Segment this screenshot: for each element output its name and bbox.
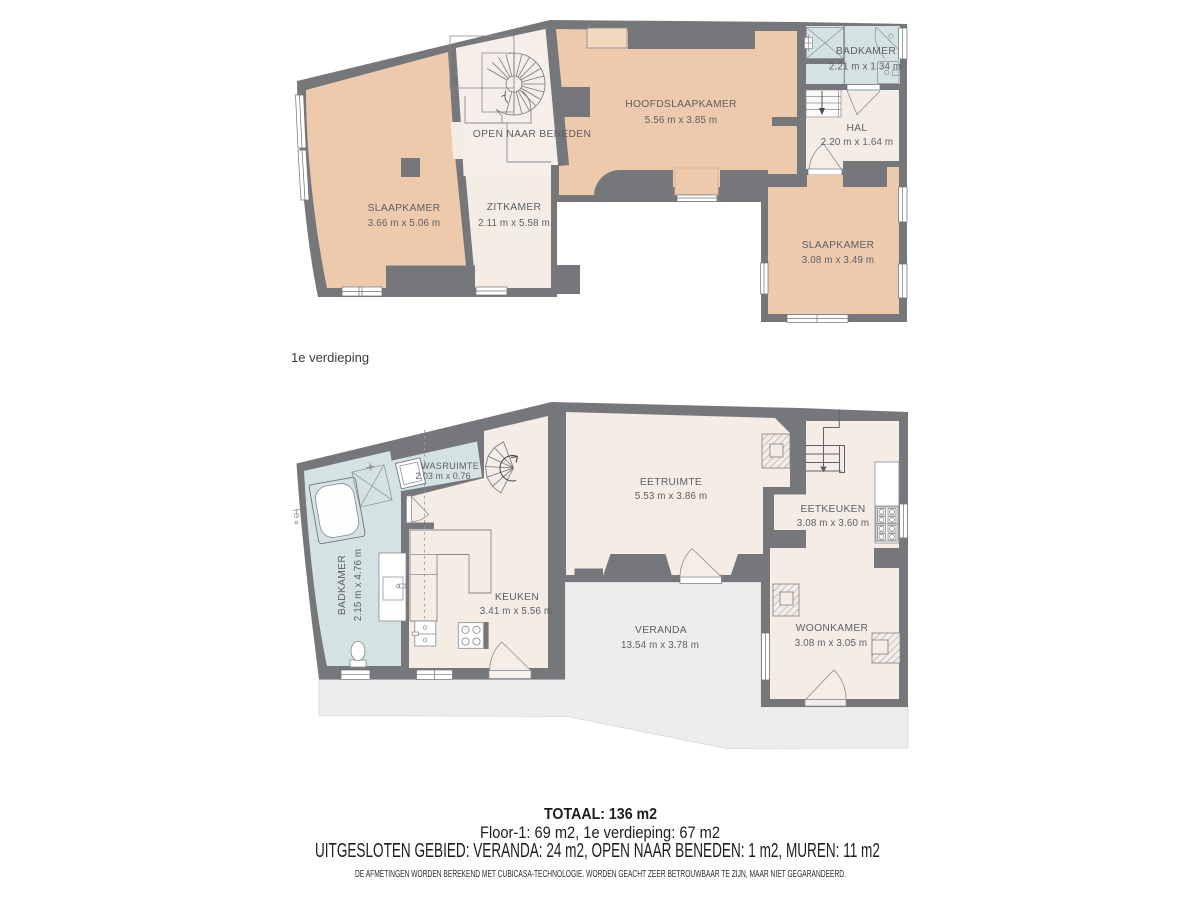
svg-text:3.66 m x 5.06 m: 3.66 m x 5.06 m [368,218,441,229]
svg-text:SLAAPKAMER: SLAAPKAMER [802,240,875,251]
svg-text:HOOFDSLAAPKAMER: HOOFDSLAAPKAMER [625,99,737,110]
svg-text:HAL: HAL [847,123,868,134]
svg-text:OPEN NAAR BENEDEN: OPEN NAAR BENEDEN [473,129,591,140]
svg-text:5.53 m x 3.86 m: 5.53 m x 3.86 m [635,491,708,502]
svg-text:EETKEUKEN: EETKEUKEN [800,504,865,515]
svg-text:3.08 m x 3.49 m: 3.08 m x 3.49 m [802,255,875,266]
svg-text:VERANDA: VERANDA [635,625,687,636]
svg-text:BADKAMER: BADKAMER [337,555,348,615]
svg-text:2.20 m x 1.64 m: 2.20 m x 1.64 m [821,137,894,148]
svg-text:2.11 m x 5.58 m: 2.11 m x 5.58 m [478,218,550,229]
svg-text:2.15 m x 4.76 m: 2.15 m x 4.76 m [353,549,364,622]
svg-text:2.21 m x 1.34 m: 2.21 m x 1.34 m [829,62,902,73]
svg-text:5.56 m x 3.85 m: 5.56 m x 3.85 m [645,115,718,126]
svg-text:EETRUIMTE: EETRUIMTE [640,477,702,488]
svg-text:SLAAPKAMER: SLAAPKAMER [368,203,441,214]
svg-text:BADKAMER: BADKAMER [836,46,896,57]
svg-text:3.41 m x 5.56 m: 3.41 m x 5.56 m [480,606,553,617]
svg-text:ZITKAMER: ZITKAMER [487,202,541,213]
svg-text:13.54 m x 3.78 m: 13.54 m x 3.78 m [621,640,699,651]
svg-text:3.08 m x 3.60 m: 3.08 m x 3.60 m [797,518,870,529]
svg-text:WOONKAMER: WOONKAMER [796,623,869,634]
svg-text:1e verdieping: 1e verdieping [291,350,369,365]
svg-text:KEUKEN: KEUKEN [495,592,539,603]
svg-text:3.08 m x 3.05 m: 3.08 m x 3.05 m [795,638,868,649]
svg-text:WASRUIMTE: WASRUIMTE [421,461,480,471]
svg-text:2.03 m x 0.76: 2.03 m x 0.76 [415,471,470,481]
